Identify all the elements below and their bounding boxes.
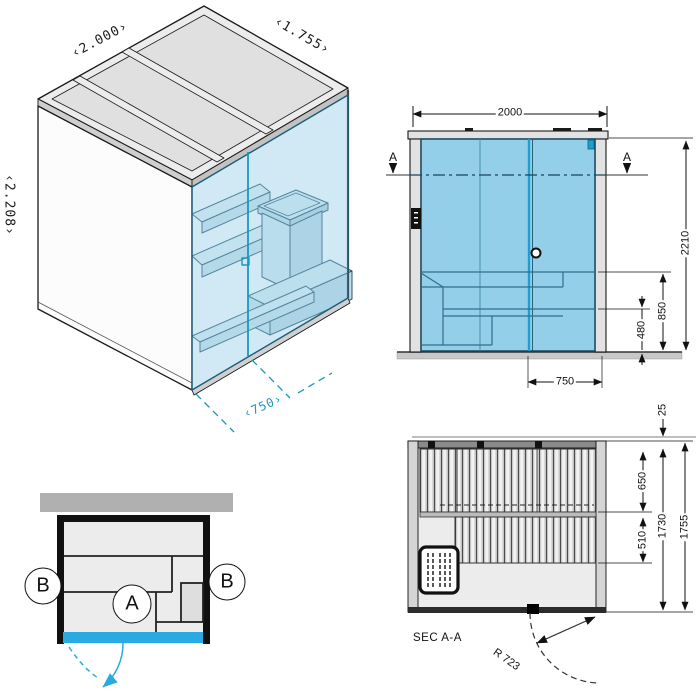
plan-marker-a: A (113, 585, 152, 624)
iso-height-label: ‹2.208› (3, 174, 16, 236)
section-lower-bench-dim: 510 (638, 529, 649, 551)
section-title: SEC A-A (413, 632, 462, 644)
plan-door-swing (69, 643, 123, 687)
section-door-arc (530, 613, 600, 683)
bench-front-rail (420, 512, 596, 517)
section-marker-a-right: A (623, 151, 631, 163)
elevation-bench-dim: 850 (658, 300, 669, 322)
right-frame (595, 139, 606, 352)
elevation-width-dim: 2000 (496, 108, 524, 119)
left-frame (410, 139, 421, 352)
section-back-wall (408, 441, 606, 448)
elevation-lower-bench-dim: 480 (637, 319, 648, 341)
top-cap (408, 131, 608, 139)
section-marker-a-left: A (389, 151, 397, 163)
plan-wall-back (57, 515, 210, 522)
section-outer-depth-dim: 1755 (680, 513, 691, 541)
plan-marker-b-right: B (209, 564, 246, 601)
plan-interior (57, 515, 210, 644)
section-inner-depth-dim: 1730 (658, 512, 669, 540)
elevation-door-width-dim: 750 (554, 377, 576, 388)
lower-bench-slats (455, 517, 596, 563)
section-wall-left (408, 441, 418, 612)
upper-bench-slats (420, 449, 596, 512)
drawing-canvas (0, 0, 700, 700)
section-upper-bench-dim: 650 (638, 470, 649, 492)
isometric-view (38, 6, 352, 432)
building-wall (40, 493, 233, 512)
section-wall-right (596, 441, 606, 612)
plan-glass-front (63, 632, 203, 643)
glass-panel (421, 139, 595, 351)
elevation-height-dim: 2210 (681, 229, 692, 257)
plan-marker-b-left: B (25, 568, 62, 605)
floor-strip (397, 352, 682, 359)
section-door-radius (537, 617, 595, 643)
section-glass-front (408, 607, 606, 613)
front-elevation-view (386, 106, 693, 388)
section-top-offset-dim: 25 (658, 404, 669, 416)
door-hinge-mark (588, 140, 594, 149)
heater-section (420, 547, 458, 593)
technical-drawing-sauna: ‹2.000› ‹1.755› ‹2.208› ‹750› 2000 2210 … (0, 0, 700, 700)
door-handle (532, 249, 541, 258)
section-door-pivot (527, 604, 539, 614)
